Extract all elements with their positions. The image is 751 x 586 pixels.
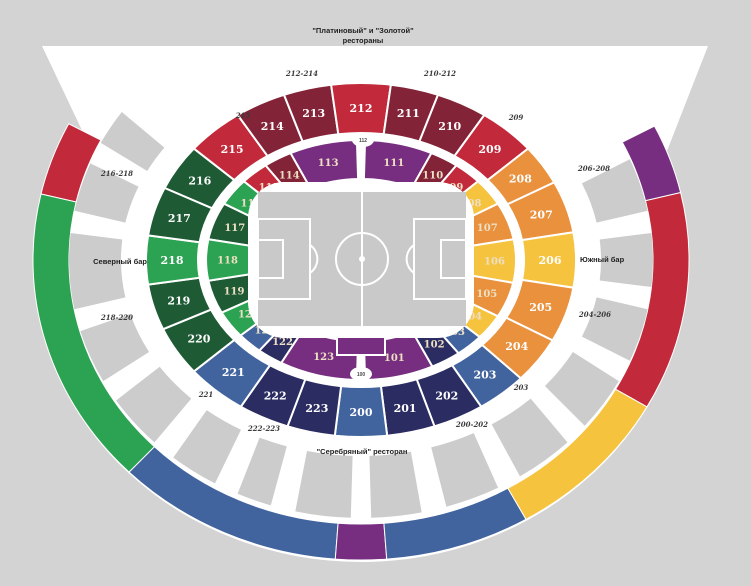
section-label-214: 214 bbox=[261, 120, 284, 133]
gate-label-215: 215 bbox=[235, 111, 251, 120]
section-label-122: 122 bbox=[272, 337, 293, 348]
stadium-canvas: 2162152142132122112102092082072062052042… bbox=[0, 0, 751, 586]
gate-label-221: 221 bbox=[198, 390, 214, 399]
section-label-210: 210 bbox=[438, 120, 461, 133]
section-label-204: 204 bbox=[505, 340, 528, 353]
section-label-213: 213 bbox=[302, 107, 325, 120]
section-label-203: 203 bbox=[474, 369, 497, 382]
area-label-silver-restaurant: "Серебряный" ресторан bbox=[317, 447, 408, 456]
section-label-206: 206 bbox=[539, 254, 562, 267]
gate-label-209: 209 bbox=[508, 113, 524, 122]
area-label-north-bar: Северный бар bbox=[93, 257, 147, 266]
area-label-restaurants-line2: рестораны bbox=[343, 36, 384, 45]
section-label-114: 114 bbox=[279, 171, 300, 182]
section-label-208: 208 bbox=[509, 172, 532, 185]
section-label-211: 211 bbox=[397, 107, 420, 120]
section-label-118: 118 bbox=[217, 256, 238, 267]
section-label-207: 207 bbox=[530, 208, 553, 221]
section-label-100: 100 bbox=[357, 372, 366, 378]
gate-label-222-223: 222-223 bbox=[247, 424, 280, 433]
section-label-117: 117 bbox=[224, 223, 245, 234]
section-label-205: 205 bbox=[529, 301, 552, 314]
section-label-217: 217 bbox=[168, 212, 191, 225]
gate-label-212-214: 212-214 bbox=[285, 69, 318, 78]
section-label-219: 219 bbox=[167, 295, 190, 308]
gate-label-206-208: 206-208 bbox=[577, 164, 610, 173]
section-label-222: 222 bbox=[264, 389, 287, 402]
section-label-105: 105 bbox=[476, 289, 497, 300]
section-label-106: 106 bbox=[484, 256, 505, 267]
gate-label-210-212: 210-212 bbox=[423, 69, 456, 78]
section-label-221: 221 bbox=[222, 366, 245, 379]
gate-label-200-202: 200-202 bbox=[455, 420, 488, 429]
section-label-212: 212 bbox=[350, 102, 373, 115]
suite-block bbox=[69, 233, 125, 309]
section-label-107: 107 bbox=[477, 223, 498, 234]
stadium-map: 2162152142132122112102092082072062052042… bbox=[0, 0, 751, 586]
section-label-112: 112 bbox=[359, 138, 367, 144]
section-label-119: 119 bbox=[224, 287, 245, 298]
gate-label-204-206: 204-206 bbox=[578, 310, 611, 319]
section-label-113: 113 bbox=[318, 158, 339, 169]
section-label-110: 110 bbox=[422, 171, 443, 182]
section-label-123: 123 bbox=[313, 352, 334, 363]
gate-label-218-220: 218-220 bbox=[100, 313, 133, 322]
section-label-200: 200 bbox=[350, 406, 373, 419]
section-label-223: 223 bbox=[305, 402, 328, 415]
gate-label-216-218: 216-218 bbox=[100, 169, 133, 178]
section-label-218: 218 bbox=[161, 254, 184, 267]
section-label-216: 216 bbox=[188, 175, 211, 188]
section-label-102: 102 bbox=[424, 340, 445, 351]
section-label-215: 215 bbox=[221, 143, 244, 156]
section-label-202: 202 bbox=[435, 389, 458, 402]
section-label-111: 111 bbox=[383, 158, 404, 169]
section-label-209: 209 bbox=[478, 143, 501, 156]
area-label-south-bar: Южный бар bbox=[580, 255, 625, 264]
section-label-201: 201 bbox=[394, 402, 417, 415]
section-label-220: 220 bbox=[188, 332, 211, 345]
stage-box bbox=[337, 337, 385, 355]
decor-arc-purple bbox=[335, 523, 386, 560]
section-label-101: 101 bbox=[384, 353, 405, 364]
area-label-restaurants-line1: "Платиновый" и "Золотой" bbox=[312, 26, 414, 35]
gate-label-203: 203 bbox=[513, 383, 529, 392]
